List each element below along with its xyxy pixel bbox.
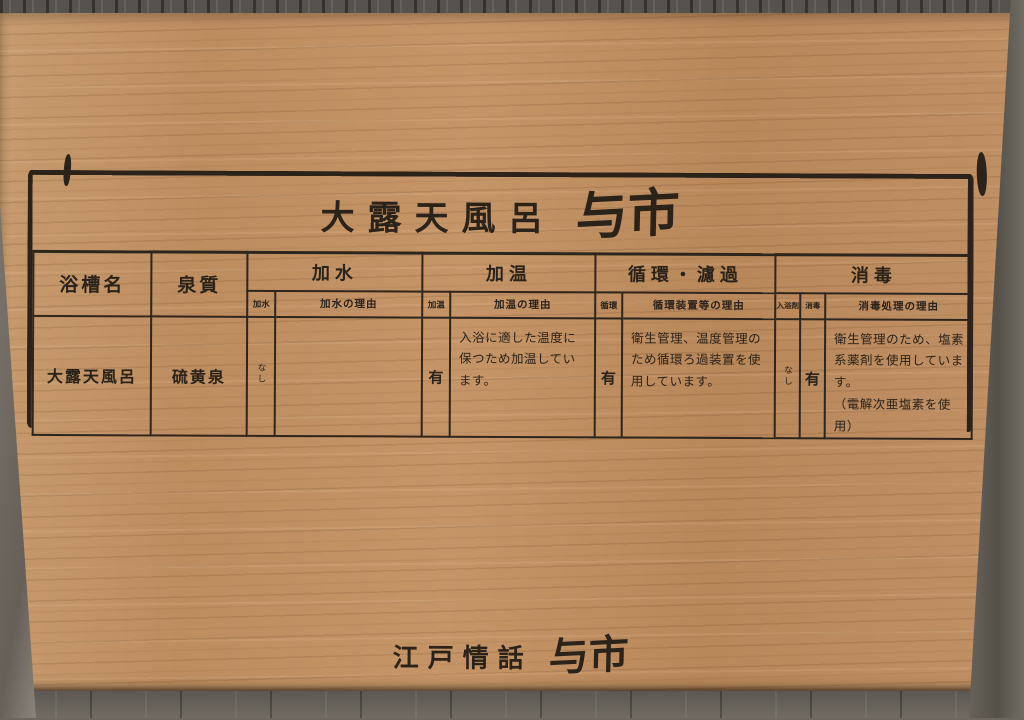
cell-bath-name: 大露天風呂 [33,315,152,435]
disinfection-reason-note: （電解次亜塩素を使用） [834,394,965,438]
bath-quality-table: 浴槽名 泉質 加水 加温 循環・濾過 消毒 加水 加水の理由 加温 加温の理由 … [32,250,968,432]
sign-title: 大露天風呂 与市 [32,181,967,249]
bath-information-sign: 大露天風呂 与市 浴槽名 泉質 加水 加温 循環・濾過 消毒 [0,0,1024,720]
subheader-water-added: 加水 [247,290,275,316]
water-added-value: なし [254,363,267,385]
header-group-heating: 加温 [422,253,595,292]
cell-heating-reason: 入浴に適した温度に保つため加温しています。 [450,317,596,437]
cell-spring-quality: 硫黄泉 [151,316,248,436]
cell-bath-additives-flag: なし [775,319,801,438]
title-calligraphy-name: 与市 [575,187,680,244]
sign-footer: 江戸情話 与市 [0,634,1023,678]
disinfection-reason-text: 衛生管理のため、塩素系薬剤を使用しています。 [834,331,964,390]
footer-calligraphy-name: 与市 [548,634,629,678]
header-spring-quality: 泉質 [151,252,247,316]
subheader-circulation: 循環 [595,292,622,318]
cell-water-added-reason [275,316,423,436]
subheader-circulation-reason: 循環装置等の理由 [622,292,775,319]
subheader-disinfection-reason: 消毒処理の理由 [825,293,972,320]
title-text: 大露天風呂 [321,190,556,240]
cell-circulation-reason: 衛生管理、温度管理のため循環ろ過装置を使用しています。 [622,318,776,438]
cell-heating-flag: 有 [422,317,451,436]
header-bath-name: 浴槽名 [33,251,151,316]
cell-disinfection-reason: 衛生管理のため、塩素系薬剤を使用しています。 （電解次亜塩素を使用） [825,319,973,439]
subheader-water-added-reason: 加水の理由 [275,290,422,317]
subheader-disinfection: 消毒 [800,293,825,319]
cell-circulation-flag: 有 [595,318,623,437]
footer-text: 江戸情話 [393,637,533,675]
header-group-circulation-filtration: 循環・濾過 [595,254,775,293]
brush-stroke-right-corner [976,152,987,196]
subheader-heating: 加温 [422,291,450,317]
header-group-water-added: 加水 [247,252,422,291]
subheader-bath-additives: 入浴剤 [775,293,800,319]
subheader-heating-reason: 加温の理由 [450,291,595,318]
bath-additives-value: なし [781,365,794,387]
sign-frame: 大露天風呂 与市 浴槽名 泉質 加水 加温 循環・濾過 消毒 [27,170,974,432]
cell-water-added-flag: なし [247,316,276,435]
header-group-disinfection: 消毒 [775,255,972,294]
cell-disinfection-flag: 有 [800,319,826,438]
